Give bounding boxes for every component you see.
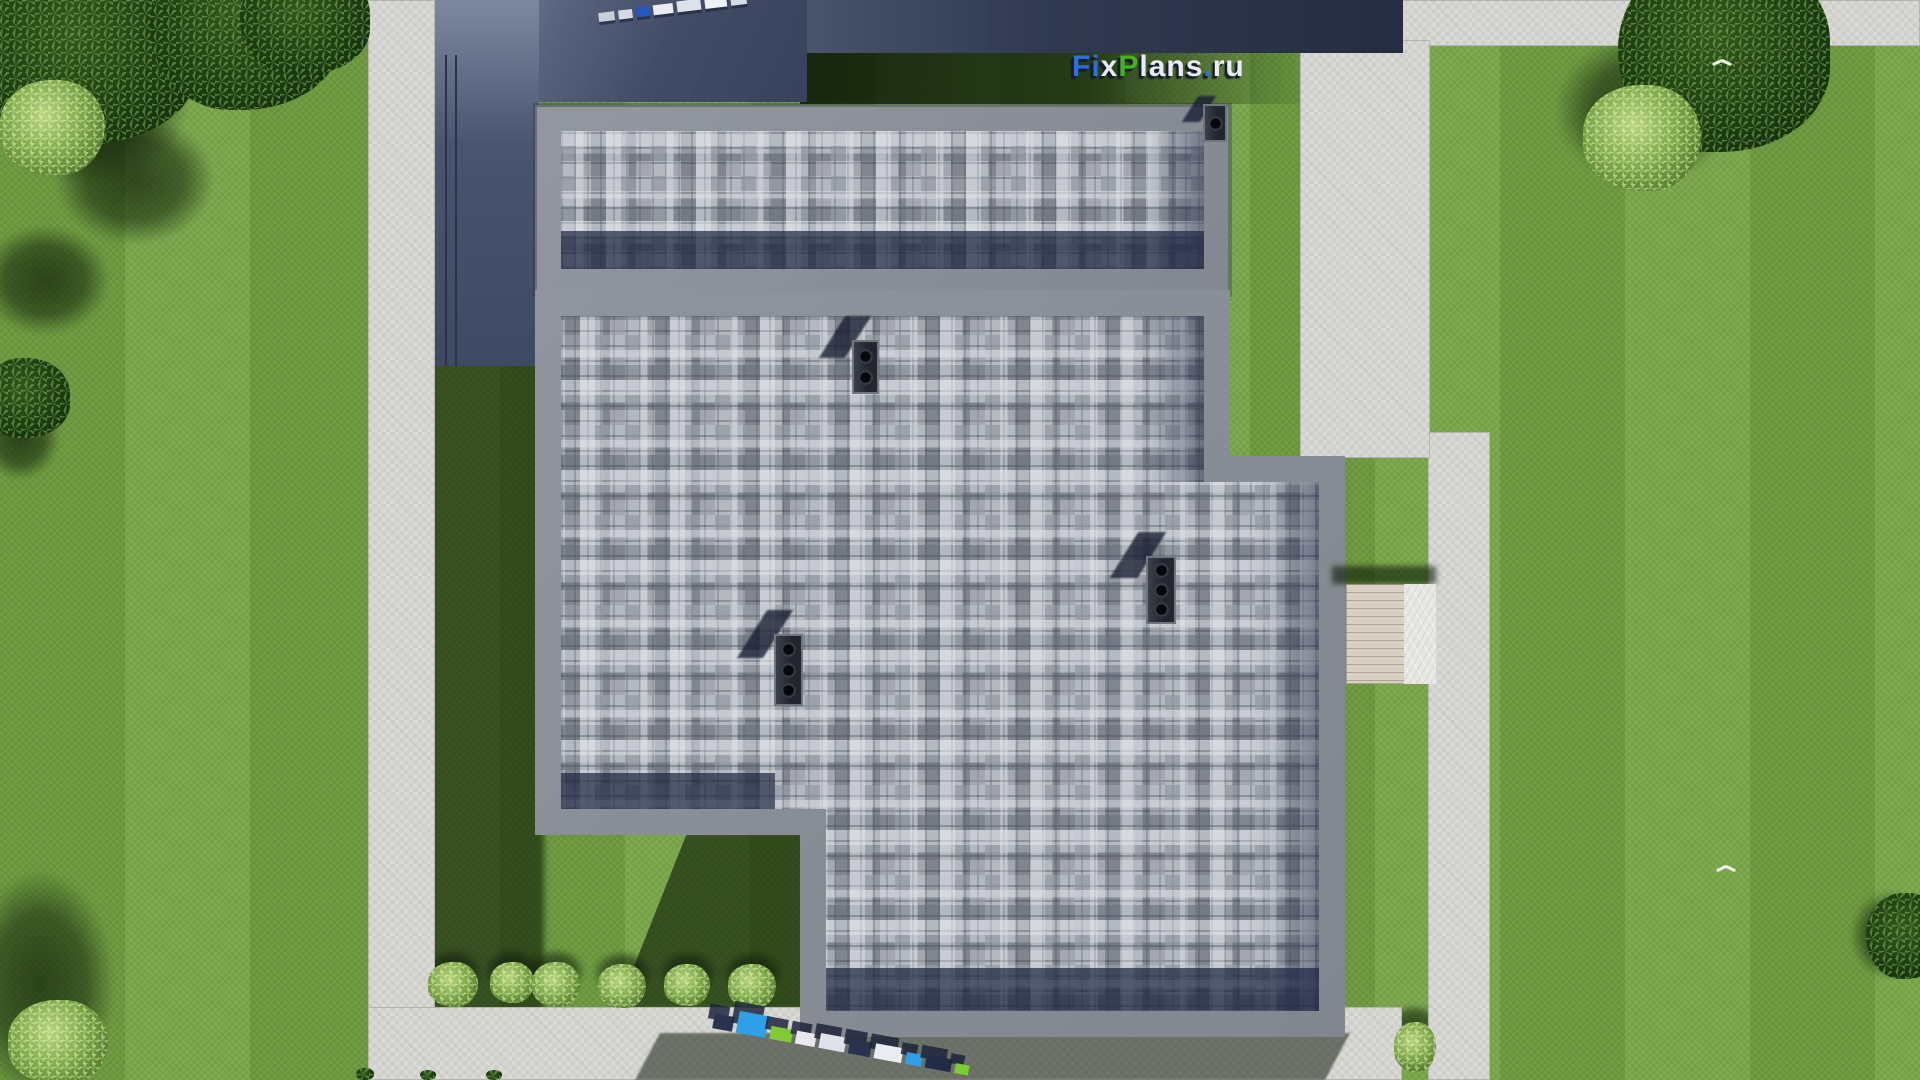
bush-row-2 (490, 962, 534, 1003)
roof-section-main (535, 290, 1345, 1037)
white-bird-on-tree (1712, 58, 1732, 68)
vent-opening (858, 349, 873, 364)
logo-segment: . (1203, 50, 1212, 83)
main-roof-shadow-band-bottom (826, 968, 1319, 1011)
bush-row-4 (598, 964, 646, 1008)
chimney-vent-1 (852, 340, 879, 394)
vent-opening (1208, 116, 1223, 131)
wood-deck-walkway (1346, 584, 1406, 684)
main-roof-shadow-band-notch (561, 773, 775, 809)
aerial-render-canvas: FixPlans.ru (0, 0, 1920, 1080)
roof-section-garage (535, 105, 1230, 295)
chimney-vent-garage (1203, 104, 1227, 142)
grass-tuft (420, 1070, 436, 1080)
bush-bottom-left (8, 1000, 108, 1080)
logo-segment: F (1072, 50, 1091, 83)
bush-row-1 (428, 962, 478, 1007)
walkway-left-vertical (368, 0, 435, 1080)
logo-segment: lans (1139, 50, 1203, 83)
vent-opening (1154, 602, 1169, 617)
watermark-block (598, 11, 615, 22)
bush-row-6 (728, 964, 776, 1008)
main-roof-pavers (535, 290, 1345, 1037)
tree-shadow (0, 225, 110, 335)
garage-roof-right-shade (1145, 131, 1204, 269)
building-shadow-left-strip (428, 358, 544, 1013)
logo-segment: x (1101, 50, 1119, 83)
vent-opening (781, 683, 796, 698)
watermark-block (636, 6, 650, 18)
vent-opening (1154, 563, 1169, 578)
fixplans-logo: FixPlans.ru (1072, 50, 1245, 84)
grass-tuft (356, 1068, 374, 1080)
bush-top-right (1583, 85, 1701, 191)
garage-roof-shadow-band (561, 231, 1204, 269)
terrace-steps (437, 55, 467, 366)
logo-segment: i (1091, 50, 1100, 83)
vent-opening (781, 663, 796, 678)
vent-opening (1154, 583, 1169, 598)
white-bird-on-lawn (1716, 864, 1736, 874)
vent-opening (858, 370, 873, 385)
driveway-apron (1300, 40, 1430, 458)
bush-row-3 (532, 962, 580, 1007)
grass-tuft (486, 1070, 502, 1080)
vent-opening (781, 642, 796, 657)
walkway-bridge-shadow (1332, 566, 1436, 584)
chimney-vent-2 (1146, 556, 1176, 624)
bush-top-left (0, 80, 105, 175)
chimney-vent-3 (774, 634, 803, 706)
logo-segment: P (1118, 50, 1139, 83)
stone-walkway-pad (1404, 584, 1436, 684)
watermark-block (618, 9, 633, 20)
main-roof-right-shade-lower (1259, 482, 1319, 1011)
logo-segment: ru (1213, 50, 1245, 83)
main-roof-right-shade-upper (1145, 316, 1204, 482)
bush-right-path (1394, 1022, 1436, 1072)
walkway-right-vertical (1428, 432, 1490, 1080)
bush-row-5 (664, 964, 710, 1006)
